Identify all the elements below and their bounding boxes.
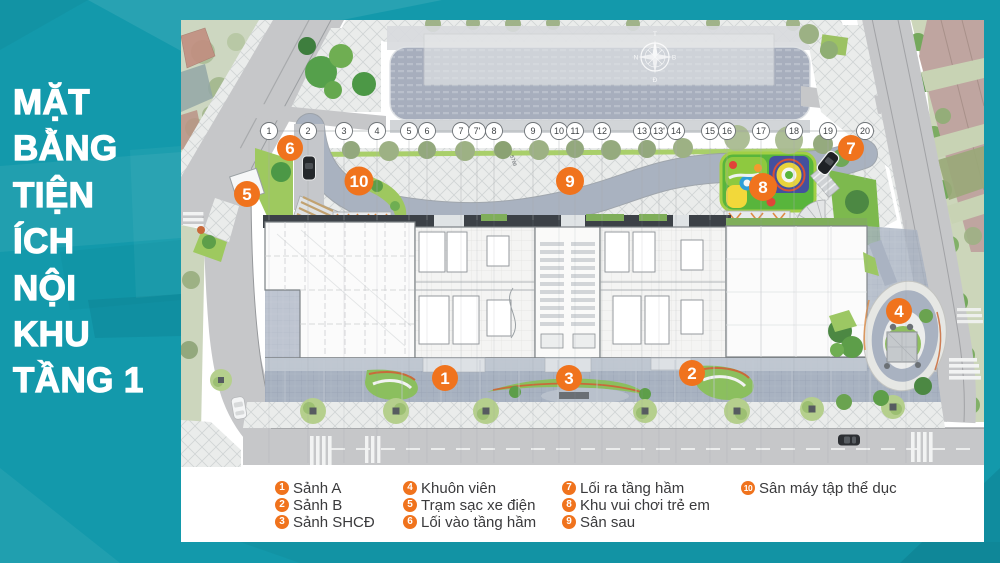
svg-text:Đ: Đ — [653, 77, 658, 84]
svg-text:5: 5 — [406, 126, 411, 136]
svg-text:7': 7' — [474, 126, 481, 136]
svg-text:6: 6 — [424, 126, 429, 136]
svg-text:8: 8 — [491, 126, 496, 136]
svg-text:13: 13 — [637, 126, 647, 136]
svg-text:B: B — [672, 55, 676, 62]
svg-text:4: 4 — [374, 126, 379, 136]
svg-text:7: 7 — [458, 126, 463, 136]
svg-text:11: 11 — [570, 126, 579, 136]
svg-text:12: 12 — [597, 126, 607, 136]
svg-text:13': 13' — [653, 126, 665, 136]
svg-text:17: 17 — [756, 126, 766, 136]
svg-text:1: 1 — [266, 126, 271, 136]
svg-text:18: 18 — [789, 126, 799, 136]
svg-text:2: 2 — [305, 126, 310, 136]
svg-text:2: 2 — [687, 364, 696, 383]
svg-text:9: 9 — [565, 172, 574, 191]
svg-text:3: 3 — [341, 126, 346, 136]
svg-text:19: 19 — [823, 126, 833, 136]
svg-text:1: 1 — [440, 369, 449, 388]
svg-text:4: 4 — [894, 302, 904, 321]
svg-text:20: 20 — [860, 126, 870, 136]
svg-text:T: T — [653, 31, 657, 38]
svg-text:10: 10 — [554, 126, 564, 136]
svg-text:14: 14 — [671, 126, 681, 136]
svg-text:N: N — [634, 55, 639, 62]
svg-text:7: 7 — [846, 139, 855, 158]
svg-text:9: 9 — [530, 126, 535, 136]
svg-text:15: 15 — [705, 126, 715, 136]
svg-text:3: 3 — [564, 369, 573, 388]
svg-text:6: 6 — [285, 139, 294, 158]
svg-text:16: 16 — [722, 126, 732, 136]
svg-text:5: 5 — [242, 185, 251, 204]
svg-text:8: 8 — [758, 178, 767, 197]
svg-text:10: 10 — [350, 172, 369, 191]
